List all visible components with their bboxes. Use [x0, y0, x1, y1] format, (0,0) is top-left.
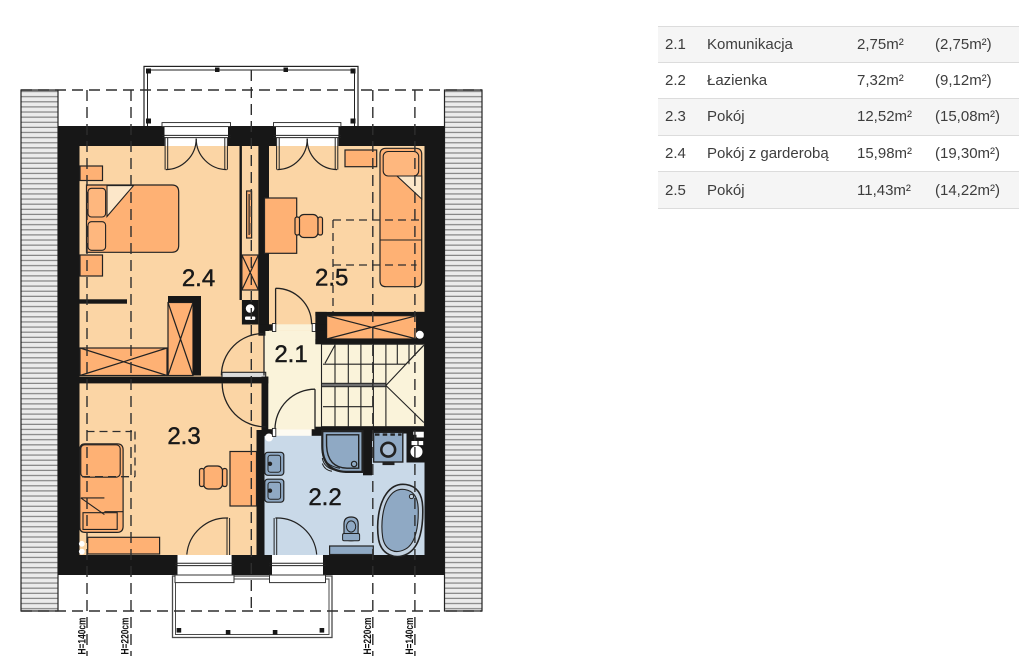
svg-text:2.1: 2.1 — [274, 341, 307, 368]
svg-text:H=140cm: H=140cm — [404, 617, 416, 654]
svg-text:H=220cm: H=220cm — [119, 617, 131, 654]
svg-text:2.2: 2.2 — [308, 484, 341, 511]
svg-text:2.3: 2.3 — [167, 423, 200, 450]
svg-text:2.5: 2.5 — [315, 265, 348, 292]
svg-text:H=140cm: H=140cm — [76, 617, 88, 654]
svg-text:H=220cm: H=220cm — [362, 617, 374, 654]
svg-text:2.4: 2.4 — [182, 265, 215, 292]
